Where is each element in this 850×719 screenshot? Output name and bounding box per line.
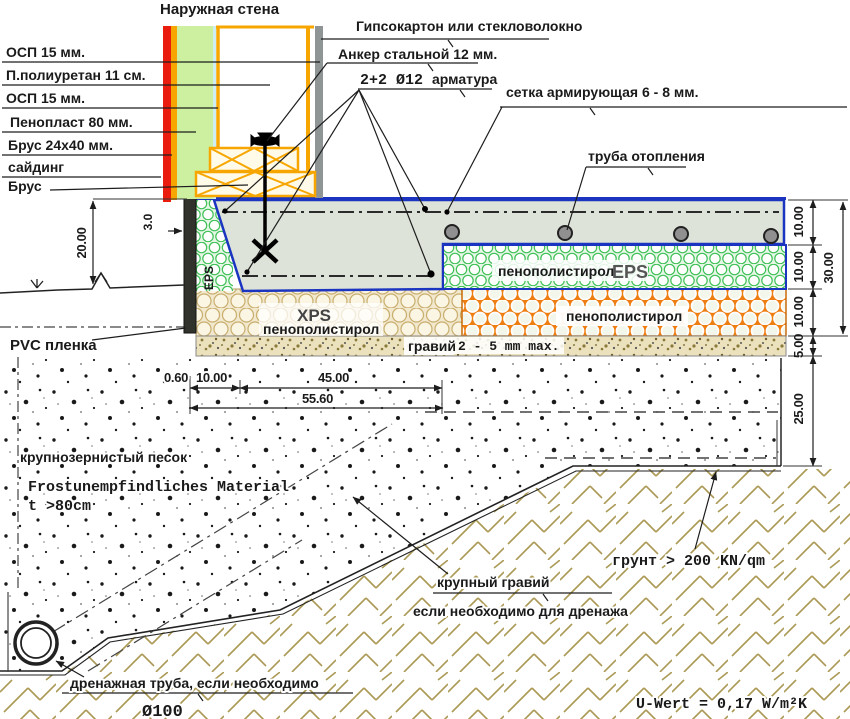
dim-10: 10.00 bbox=[196, 370, 227, 385]
callout-polyurethane: П.полиуретан 11 см. bbox=[6, 67, 146, 83]
callout-siding: сайдинг bbox=[8, 159, 64, 175]
callout-beam: Брус bbox=[8, 178, 42, 194]
callout-mesh: сетка армирующая 6 - 8 мм. bbox=[506, 84, 699, 100]
callout-osb2: ОСП 15 мм. bbox=[6, 90, 85, 106]
soil-bearing-label: грунт > 200 KN/qm bbox=[612, 553, 765, 570]
dim-060: 0.60 bbox=[164, 370, 188, 385]
callout-rebar-count: 2+2 Ø12 bbox=[360, 72, 423, 89]
grade-line bbox=[0, 273, 184, 293]
heating-pipe-icon bbox=[558, 226, 572, 240]
u-value-label: U-Wert = 0,17 W/m²K bbox=[636, 696, 807, 713]
grass-tuft-icon bbox=[31, 279, 43, 288]
batten-layer bbox=[171, 26, 177, 200]
dim-insul-total: 30.00 bbox=[821, 252, 836, 283]
callout-pvc: PVC пленка bbox=[10, 337, 97, 354]
siding-layer bbox=[163, 26, 171, 202]
coarse-gravel-label: крупный гравий bbox=[437, 574, 550, 590]
dim-eps: 10.00 bbox=[791, 251, 806, 282]
coarse-gravel-note: если необходимо для дренажа bbox=[413, 603, 628, 619]
drain-pipe-label: дренажная труба, если необходимо bbox=[70, 675, 319, 691]
callout-batten: Брус 24х40 мм. bbox=[8, 137, 113, 153]
gravel-grade-label: 2 - 5 mm max. bbox=[458, 339, 559, 354]
callout-heat-pipe: труба отопления bbox=[588, 148, 705, 164]
heating-pipe-icon bbox=[764, 229, 778, 243]
drainage-pipe bbox=[15, 622, 57, 664]
eps-side-label: EPS bbox=[202, 266, 216, 290]
callout-penoplast: Пенопласт 80 мм. bbox=[10, 114, 133, 130]
eps-block-type: EPS bbox=[612, 262, 648, 282]
dim-edge-thickness: 3.0 bbox=[141, 213, 155, 230]
heating-pipe-icon bbox=[674, 227, 688, 241]
dim-5560: 55.60 bbox=[302, 391, 333, 406]
pps-orange-label: пенополистирол bbox=[566, 308, 682, 324]
heating-pipe-icon bbox=[445, 225, 459, 239]
foundation-slab-drawing: Наружная стена ОСП 15 мм. П.полиуретан 1… bbox=[0, 0, 850, 719]
callout-rebar-word: арматура bbox=[432, 71, 497, 87]
upper-sill-beam bbox=[210, 148, 298, 171]
dim-xps: 10.00 bbox=[791, 296, 806, 327]
sill-beams bbox=[196, 148, 315, 196]
callout-anchor: Анкер стальной 12 мм. bbox=[338, 46, 497, 62]
dim-gravel: 5.00 bbox=[791, 334, 806, 358]
drain-diameter-label: Ø100 bbox=[142, 703, 183, 719]
gravel-label: гравий bbox=[408, 338, 456, 354]
xps-block-label: пенополистирол bbox=[263, 321, 379, 337]
callout-osb1: ОСП 15 мм. bbox=[6, 44, 85, 60]
drawing-title: Наружная стена bbox=[160, 1, 280, 18]
dim-sand: 25.00 bbox=[791, 393, 806, 424]
callout-gypsum: Гипсокартон или стекловолокно bbox=[356, 18, 582, 34]
eps-block-label: пенополистирол bbox=[498, 263, 614, 279]
frost-material-label: Frostunempfindliches Material bbox=[28, 479, 289, 496]
dim-wall-height: 20.00 bbox=[74, 227, 89, 258]
dim-slab: 10.00 bbox=[791, 206, 806, 237]
pvc-edge-strip bbox=[184, 198, 196, 333]
dim-45: 45.00 bbox=[318, 370, 349, 385]
frost-depth-label: t >80cm bbox=[28, 498, 91, 515]
sand-label: крупнозернистый песок bbox=[20, 449, 188, 465]
